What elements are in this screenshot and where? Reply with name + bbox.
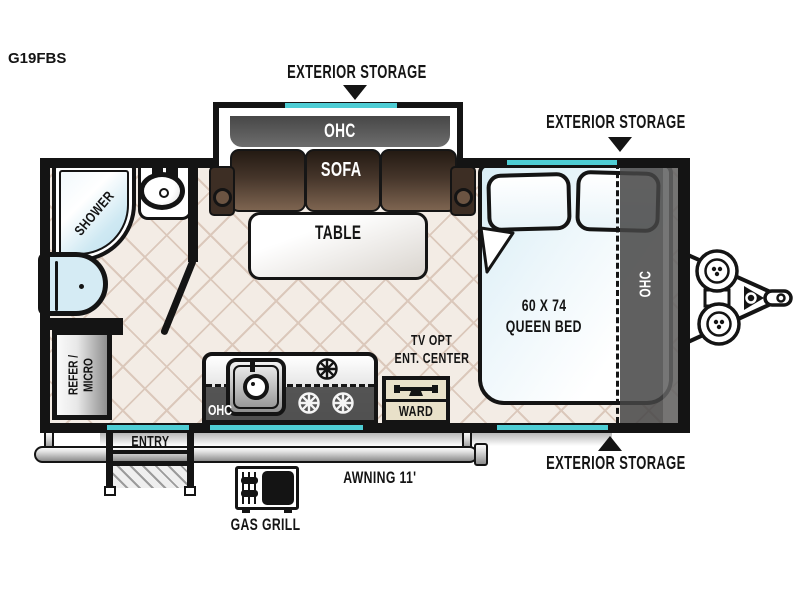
bed-type: QUEEN BED bbox=[506, 317, 582, 338]
pillow bbox=[486, 172, 571, 232]
gas-grill-label: GAS GRILL bbox=[231, 515, 301, 535]
bath-wall bbox=[188, 162, 198, 262]
gas-grill-icon bbox=[235, 466, 299, 510]
table-label-wrap: TABLE bbox=[248, 222, 428, 246]
gas-grill-label-wrap: GAS GRILL bbox=[196, 515, 336, 535]
tv-icon bbox=[392, 381, 440, 399]
shower-label-wrap: SHOWER bbox=[52, 163, 136, 262]
galley-window bbox=[210, 425, 363, 430]
tv-opt-note: TV OPT ENT. CENTER bbox=[372, 332, 492, 368]
exterior-storage-front-text: EXTERIOR STORAGE bbox=[546, 112, 685, 133]
ward-label: WARD bbox=[399, 403, 433, 420]
burner-icon bbox=[330, 390, 356, 416]
cupholder-icon bbox=[454, 188, 473, 207]
entry-label: ENTRY bbox=[131, 433, 169, 450]
model-label: G19FBS bbox=[8, 50, 66, 67]
floorplan-g19fbs: G19FBS OHC SOFA TABLE SHOWER bbox=[0, 0, 800, 600]
tv-opt-line2: ENT. CENTER bbox=[395, 350, 470, 368]
arrow-down-icon bbox=[343, 85, 367, 100]
exterior-storage-bottom-label: EXTERIOR STORAGE bbox=[516, 453, 716, 473]
entry-door-window bbox=[107, 425, 189, 430]
kitchen-counter: OHC bbox=[202, 352, 378, 424]
refer-label-line2: MICRO bbox=[82, 355, 97, 395]
propane-tank-icon bbox=[697, 251, 737, 291]
tv-opt-line1: TV OPT bbox=[411, 332, 452, 350]
bedroom-ohc-label-wrap: OHC bbox=[620, 163, 674, 405]
propane-tank-icon bbox=[699, 304, 739, 344]
sofa-ohc-label: OHC bbox=[324, 121, 355, 143]
entry-label-wrap: ENTRY bbox=[104, 433, 196, 450]
wall-rear bbox=[40, 158, 50, 433]
kitchen-sink-icon bbox=[226, 358, 286, 416]
burner-icon bbox=[314, 356, 340, 382]
wall-top-left bbox=[40, 158, 213, 168]
kitchen-ohc-label: OHC bbox=[208, 402, 232, 419]
cupholder-icon bbox=[213, 188, 232, 207]
bedroom-ohc-dashline bbox=[616, 163, 619, 423]
burner-icon bbox=[296, 390, 322, 416]
arrow-down-icon bbox=[608, 137, 632, 152]
exterior-storage-top-label: EXTERIOR STORAGE bbox=[257, 62, 457, 82]
bedroom-ohc-label: OHC bbox=[638, 271, 656, 298]
bath-sink-icon bbox=[139, 172, 185, 210]
sofa-label: SOFA bbox=[321, 159, 362, 182]
awning-end-cap bbox=[474, 443, 488, 466]
blanket-fold bbox=[479, 226, 519, 274]
awning-roller bbox=[34, 446, 478, 463]
awning-label-wrap: AWNING 11' bbox=[300, 468, 460, 488]
bed-label: 60 X 74 QUEEN BED bbox=[478, 296, 610, 337]
bed-storage-door bbox=[497, 425, 608, 430]
exterior-storage-top-text: EXTERIOR STORAGE bbox=[287, 62, 426, 83]
exterior-storage-bottom-text: EXTERIOR STORAGE bbox=[546, 453, 685, 474]
bed-size: 60 X 74 bbox=[522, 296, 567, 317]
bedroom-window bbox=[507, 160, 617, 165]
slideout-window bbox=[285, 103, 397, 108]
wardrobe: WARD bbox=[382, 376, 450, 424]
sofa-ohc-cabinet: OHC bbox=[230, 116, 450, 147]
table-label: TABLE bbox=[315, 223, 361, 245]
arrow-up-icon bbox=[598, 436, 622, 451]
hitch-assembly bbox=[686, 248, 800, 350]
awning-label: AWNING 11' bbox=[343, 468, 416, 488]
exterior-storage-front-label: EXTERIOR STORAGE bbox=[516, 112, 716, 132]
refer-micro-cabinet: REFER / MICRO bbox=[52, 330, 112, 420]
sofa-label-wrap: SOFA bbox=[230, 157, 453, 183]
shower-label: SHOWER bbox=[71, 187, 117, 238]
